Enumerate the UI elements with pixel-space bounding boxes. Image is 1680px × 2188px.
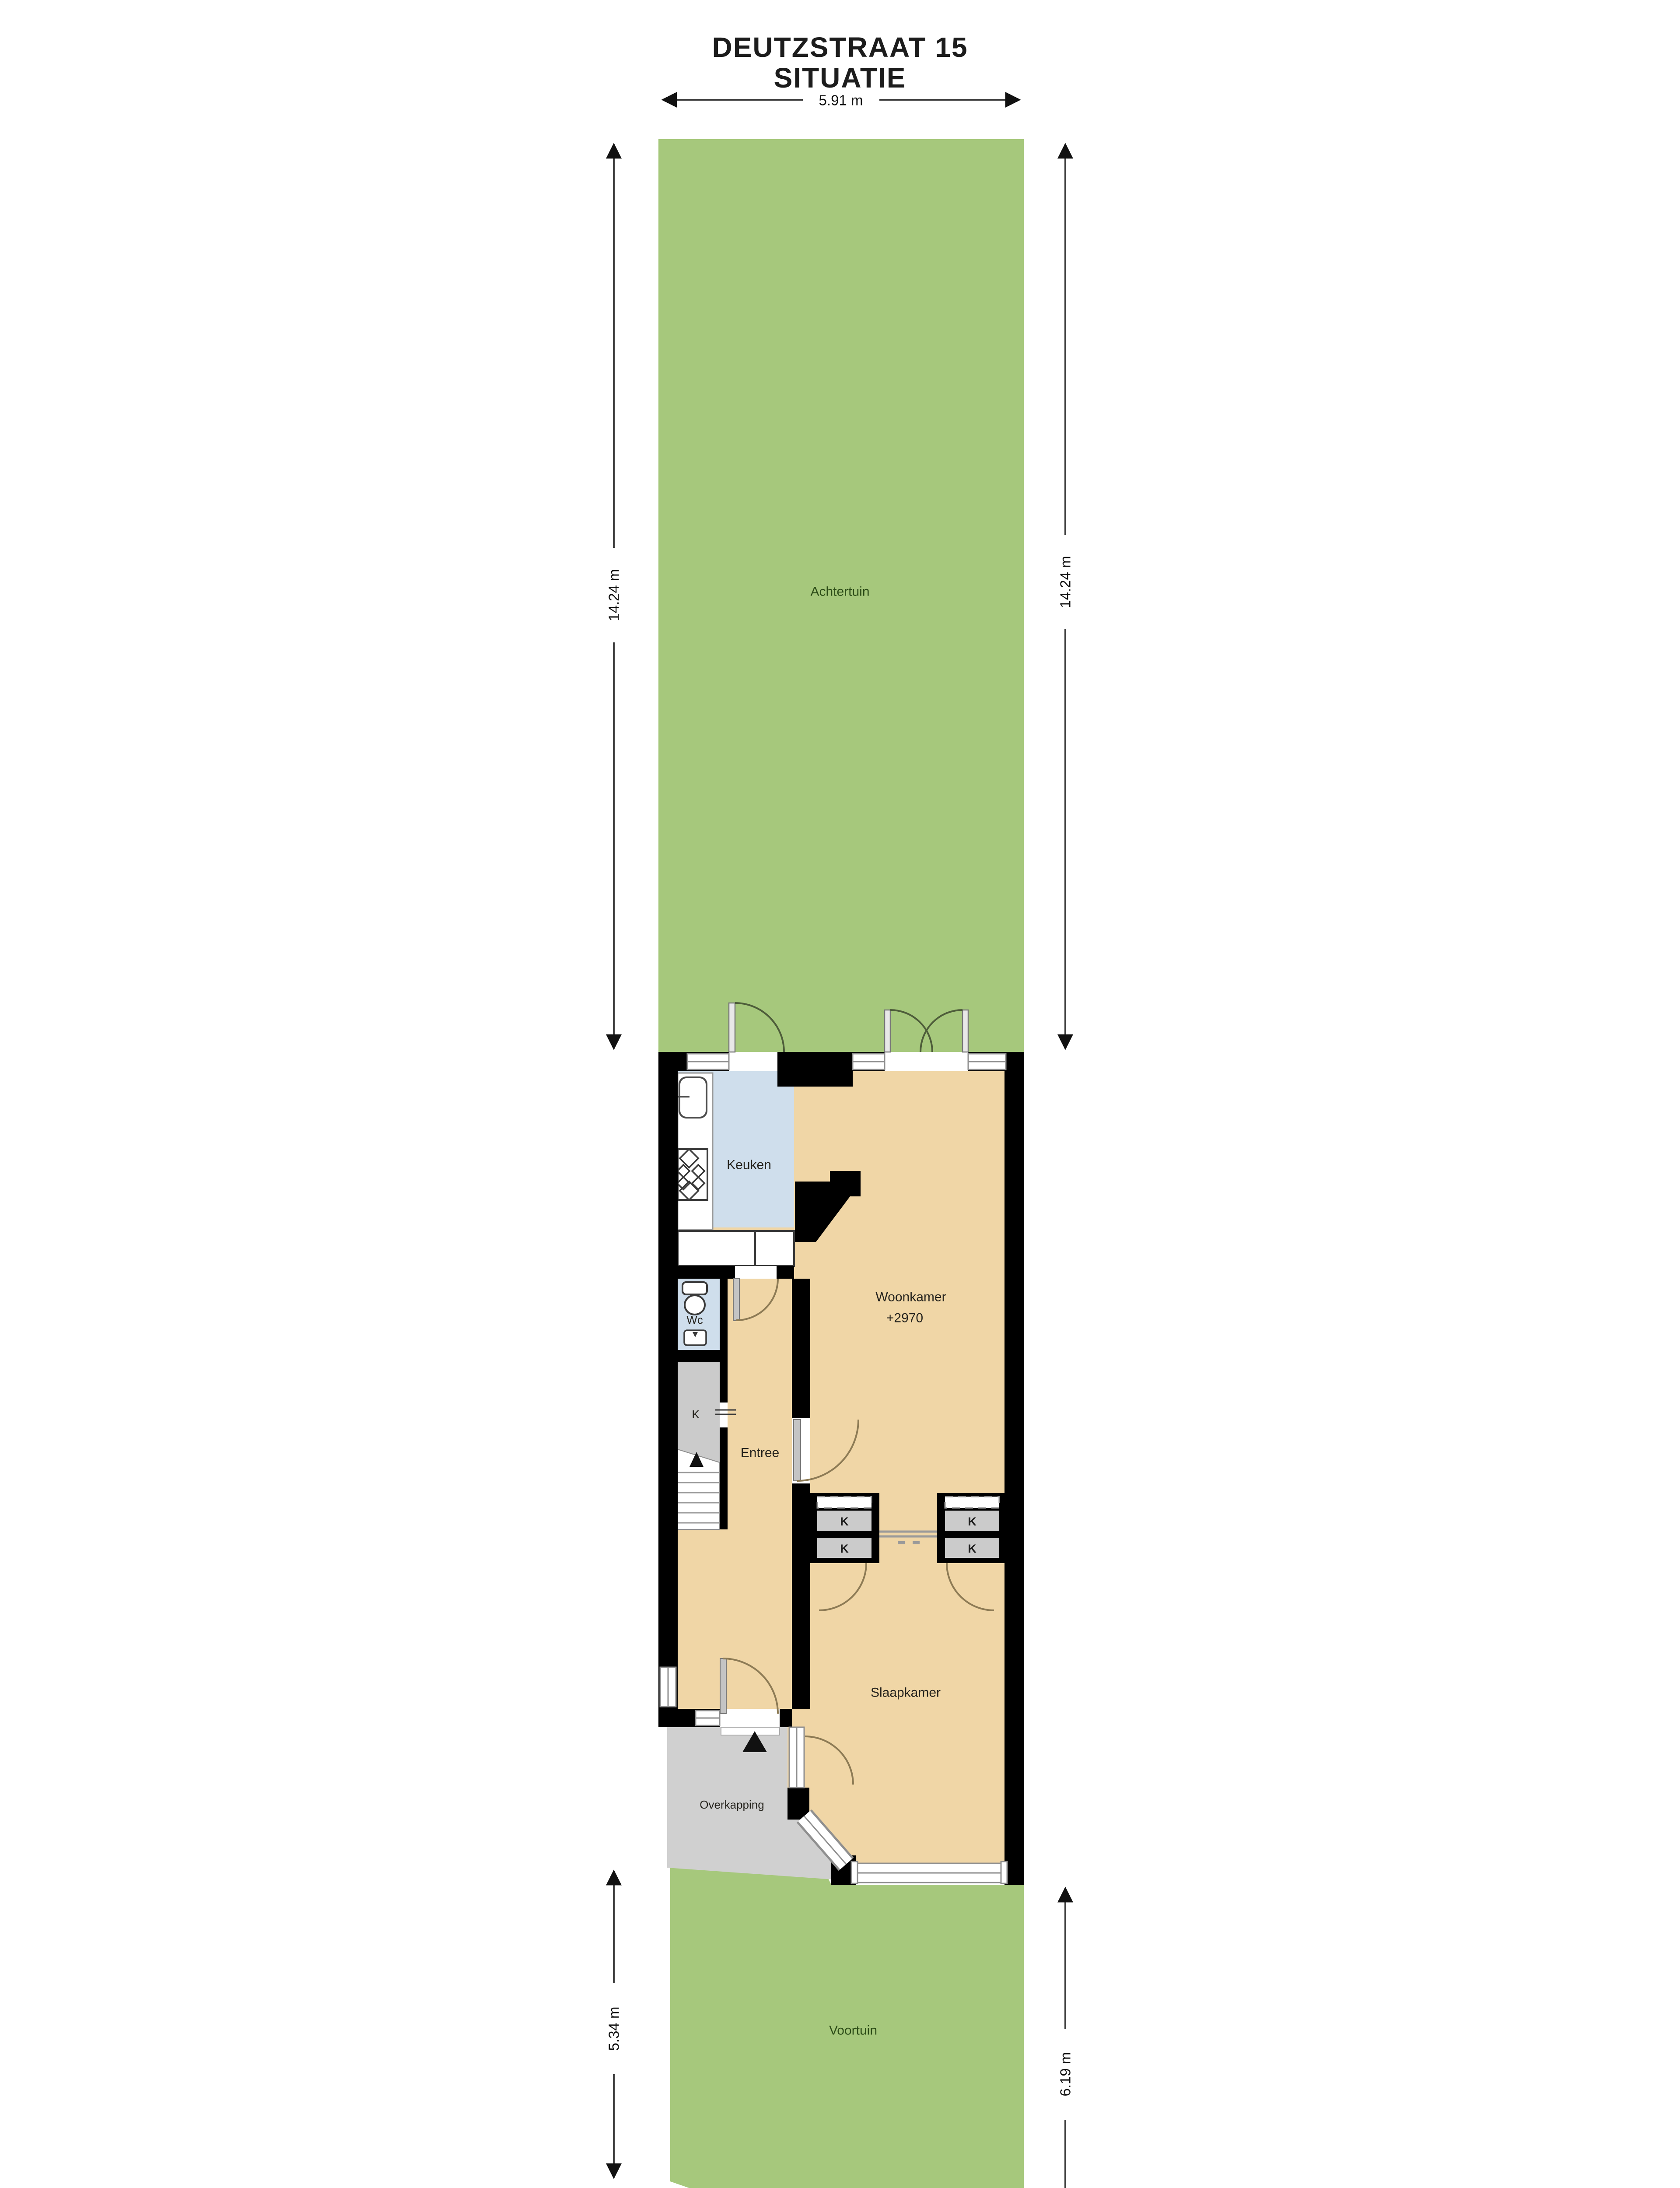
label-voortuin: Voortuin [829, 2023, 877, 2038]
svg-text:5.34 m: 5.34 m [606, 2007, 622, 2051]
dimension-front-garden-left: 5.34 m [606, 1871, 622, 2177]
svg-text:5.91 m: 5.91 m [819, 92, 863, 109]
label-wc: Wc [686, 1313, 703, 1326]
page-title-address: DEUTZSTRAAT 15 [712, 32, 968, 63]
label-entree: Entree [741, 1446, 779, 1460]
window-left-wall [660, 1667, 676, 1707]
label-closet-1: K [840, 1515, 849, 1528]
dimension-back-garden-right: 14.24 m [1057, 144, 1074, 1048]
label-woonkamer: Woonkamer [875, 1290, 946, 1304]
svg-text:14.24 m: 14.24 m [606, 569, 622, 621]
label-closet-4: K [968, 1542, 976, 1555]
window-top-1 [687, 1054, 729, 1069]
window-bottom-wall [696, 1711, 720, 1725]
stove-icon [677, 1149, 707, 1200]
svg-text:14.24 m: 14.24 m [1057, 556, 1074, 608]
label-closet-2: K [840, 1542, 849, 1555]
bay-door-west [789, 1727, 804, 1788]
label-kast: K [692, 1408, 700, 1421]
window-top-3 [968, 1054, 1006, 1069]
label-keuken: Keuken [727, 1158, 771, 1172]
page-title-subtitle: SITUATIE [774, 62, 906, 94]
dimension-plot-width-top: 5.91 m [663, 92, 1019, 109]
situatie-page: Achtertuin Keuken Woonkamer +2970 Wc K E… [0, 0, 1680, 2188]
label-closet-3: K [968, 1515, 976, 1528]
label-slaapkamer: Slaapkamer [871, 1686, 941, 1700]
label-overkapping: Overkapping [700, 1798, 764, 1811]
svg-text:6.19 m: 6.19 m [1057, 2052, 1074, 2097]
dimension-front-garden-right: 6.19 m [1057, 1888, 1074, 2188]
wc-sink-icon [684, 1330, 706, 1345]
window-bay-bottom [851, 1862, 1007, 1883]
floor-plan-canvas: Achtertuin Keuken Woonkamer +2970 Wc K E… [0, 0, 1680, 2188]
upper-cabinet-dashed-right [945, 1497, 999, 1508]
label-achtertuin: Achtertuin [810, 585, 869, 599]
upper-cabinet-dashed-left [817, 1497, 871, 1508]
front-door-step [721, 1727, 780, 1735]
label-woonkamer-level: +2970 [886, 1311, 923, 1325]
window-top-2 [853, 1054, 885, 1069]
kitchen-cabinet-right [755, 1231, 794, 1266]
dimension-back-garden-left: 14.24 m [606, 144, 622, 1048]
kitchen-cabinet-left [678, 1231, 755, 1266]
